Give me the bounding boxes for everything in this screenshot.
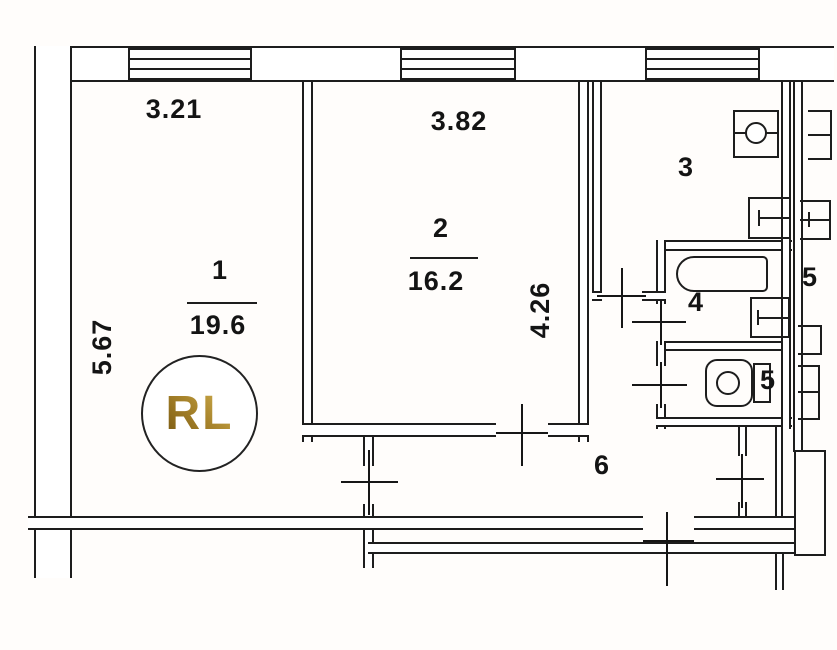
stove-icon — [758, 210, 760, 226]
door-cross-icon — [632, 321, 686, 323]
wall-bath-wc-divider — [666, 341, 791, 351]
door-cross-icon — [741, 454, 743, 508]
wall-kitchen-left — [592, 82, 602, 301]
room-2-underline — [410, 257, 478, 259]
stove-icon — [758, 217, 791, 219]
wall-closet-right — [775, 427, 783, 521]
wall-kitchen-bottom — [656, 240, 792, 251]
door-cross-icon — [621, 268, 623, 328]
wall-bottom-outer — [368, 542, 796, 554]
wall-room2-right — [578, 82, 589, 442]
adjacent-fixture-icon — [798, 325, 822, 355]
window-icon — [645, 48, 760, 80]
door-cross-icon — [660, 300, 662, 345]
door-cross-icon — [716, 478, 764, 480]
realty-logo-text: RL — [166, 386, 234, 441]
adjacent-fixture-icon — [800, 219, 831, 221]
wall-room1-room2 — [302, 82, 313, 442]
washbasin-icon — [757, 317, 790, 319]
door-cross-icon — [496, 432, 548, 434]
adjacent-fixture-icon — [798, 391, 820, 393]
toilet-icon — [716, 371, 740, 395]
door-cross-icon — [666, 512, 668, 586]
window-icon — [400, 48, 516, 80]
room-1-underline — [187, 302, 257, 304]
door-cross-icon — [643, 540, 694, 542]
dimension-room1-top: 3.21 — [139, 96, 209, 123]
room-5-number: 5 — [750, 367, 786, 394]
room-2-area: 16.2 — [400, 268, 472, 295]
wall-wc-bottom — [656, 417, 792, 427]
room-6-number: 6 — [582, 452, 622, 479]
door-cross-icon — [368, 450, 370, 515]
adjacent-fixture-icon — [808, 134, 832, 136]
adjacent-fixture-icon — [808, 212, 810, 227]
room-1-number: 1 — [200, 257, 240, 284]
dimension-room2-right: 4.26 — [527, 274, 555, 346]
dimension-room1-left: 5.67 — [89, 311, 117, 383]
door-cross-icon — [660, 362, 662, 408]
floor-plan: 3.21 3.82 5.67 4.26 1 19.6 2 16.2 3 4 5 … — [0, 0, 837, 650]
dimension-room2-top: 3.82 — [424, 108, 494, 135]
stair-doorframe — [794, 450, 826, 556]
room-1-area: 19.6 — [182, 312, 254, 339]
room-2-number: 2 — [421, 215, 461, 242]
door-cross-icon — [521, 404, 523, 466]
realty-logo: RL — [141, 355, 258, 472]
door-cross-icon — [597, 295, 646, 297]
door-opening — [643, 514, 694, 532]
room-4-number: 4 — [678, 289, 714, 316]
window-icon — [128, 48, 252, 80]
wall-stub-bottom-right — [775, 554, 784, 590]
washbasin-icon — [757, 310, 759, 325]
exterior-wall-left — [34, 46, 72, 578]
room-3-number: 3 — [668, 154, 704, 181]
adjacent-room-5-number: 5 — [792, 264, 828, 291]
kitchen-sink-icon — [745, 122, 767, 144]
